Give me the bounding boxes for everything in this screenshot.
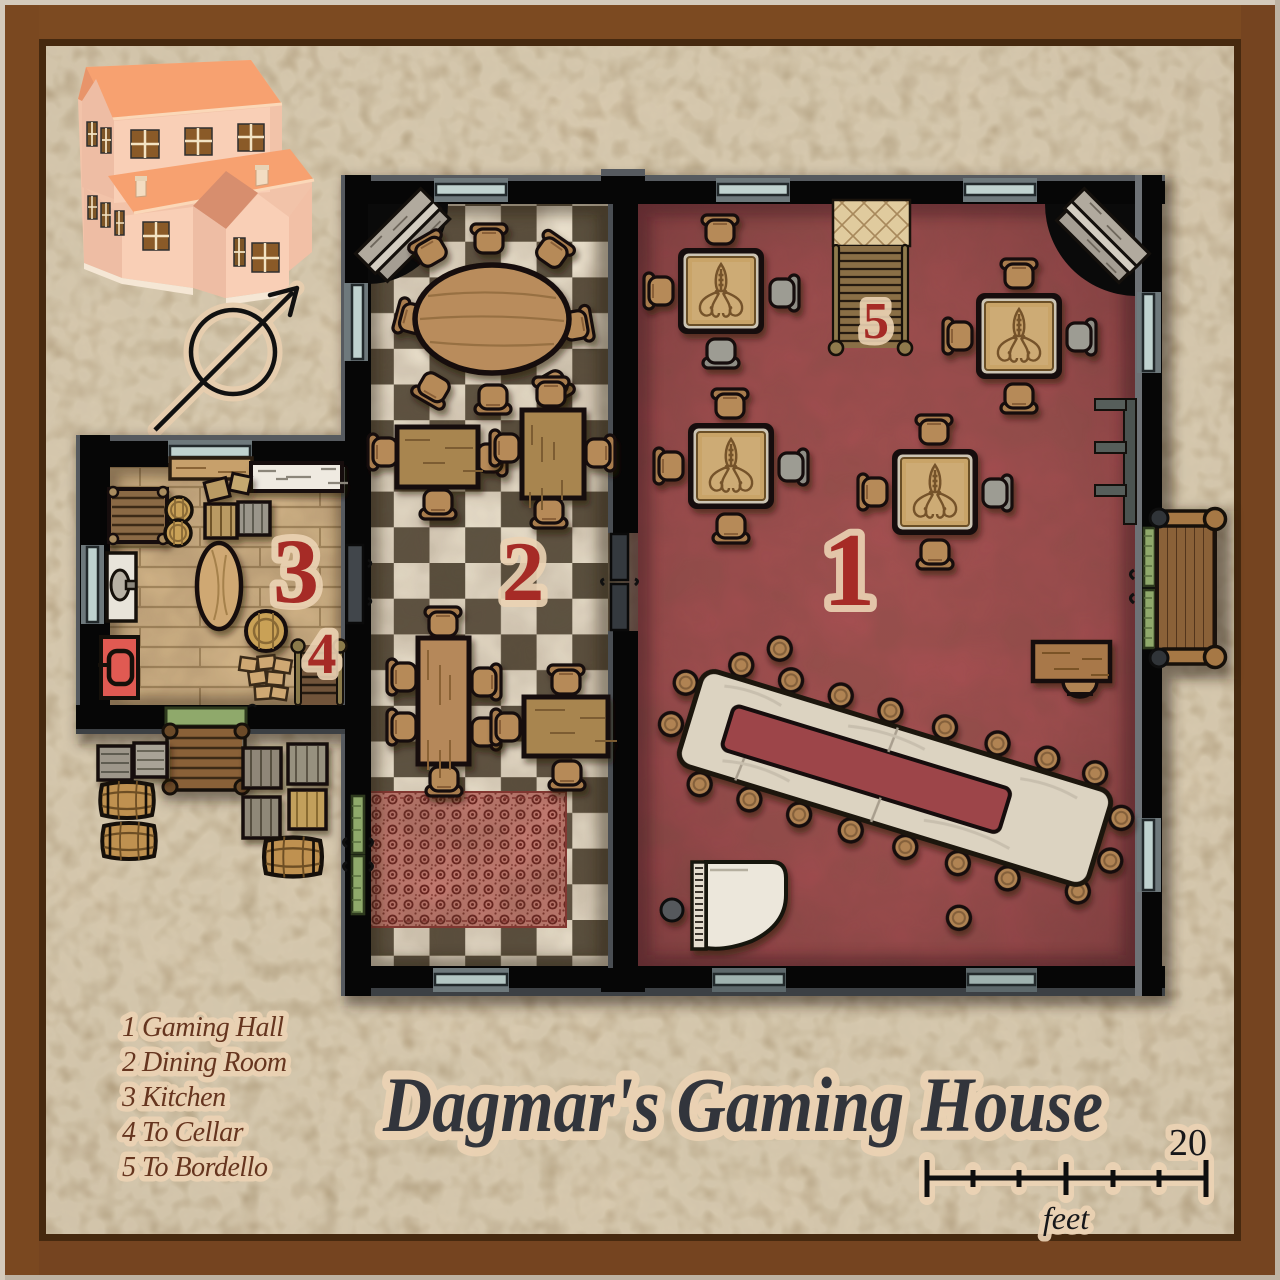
svg-text:3 Kitchen: 3 Kitchen — [121, 1082, 226, 1113]
svg-text:3: 3 — [273, 520, 319, 622]
svg-text:5: 5 — [863, 293, 889, 350]
svg-text:4 To Cellar: 4 To Cellar — [122, 1117, 244, 1148]
svg-text:2 Dining Room: 2 Dining Room — [122, 1047, 287, 1078]
svg-text:20: 20 — [1169, 1122, 1207, 1164]
svg-text:2: 2 — [502, 525, 545, 619]
svg-text:feet: feet — [1043, 1200, 1090, 1236]
svg-text:4: 4 — [308, 621, 337, 686]
svg-text:1 Gaming Hall: 1 Gaming Hall — [122, 1012, 284, 1043]
svg-text:Dagmar's Gaming House: Dagmar's Gaming House — [382, 1061, 1103, 1148]
svg-text:5 To Bordello: 5 To Bordello — [122, 1152, 268, 1183]
svg-text:1: 1 — [823, 511, 876, 628]
